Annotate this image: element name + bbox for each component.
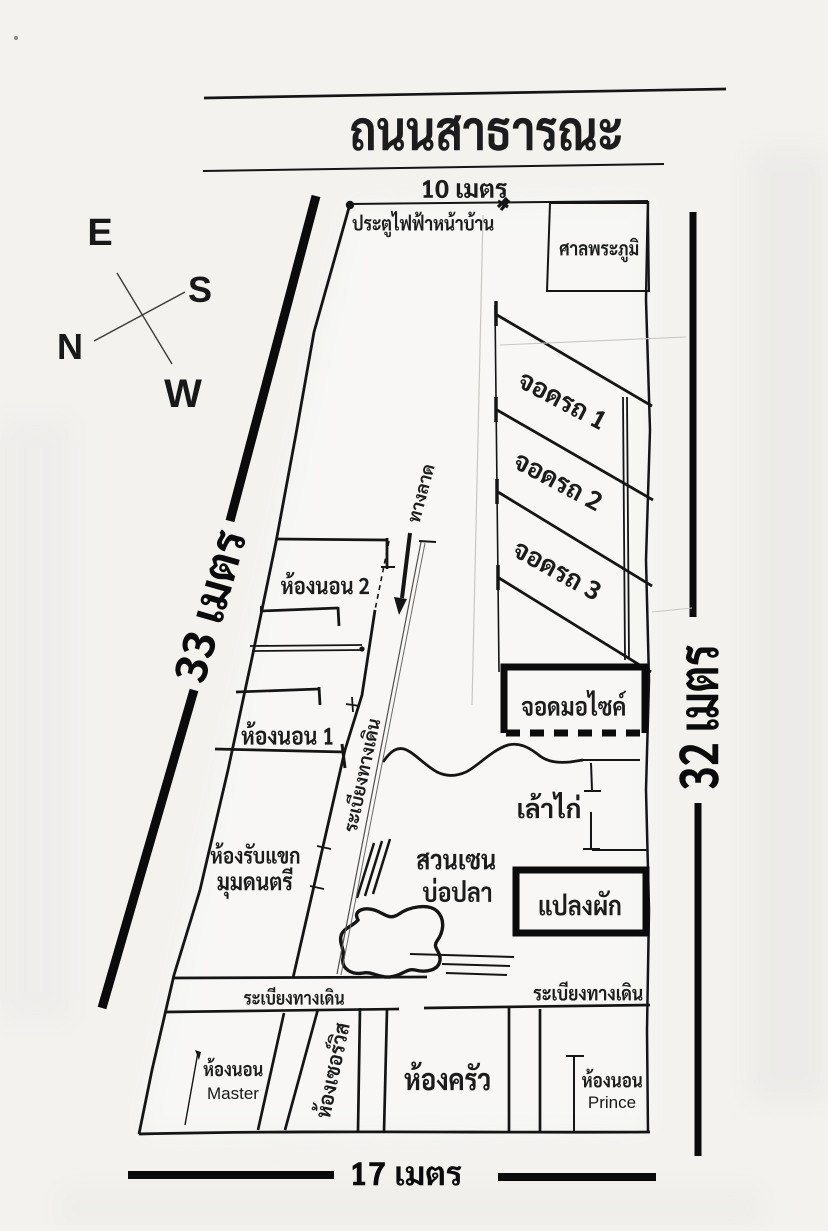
svg-text:S: S bbox=[188, 269, 212, 310]
svg-text:Master: Master bbox=[207, 1084, 259, 1103]
svg-text:W: W bbox=[164, 372, 202, 416]
svg-text:N: N bbox=[57, 326, 83, 367]
svg-text:E: E bbox=[87, 212, 112, 254]
svg-text:Prince: Prince bbox=[588, 1093, 636, 1112]
